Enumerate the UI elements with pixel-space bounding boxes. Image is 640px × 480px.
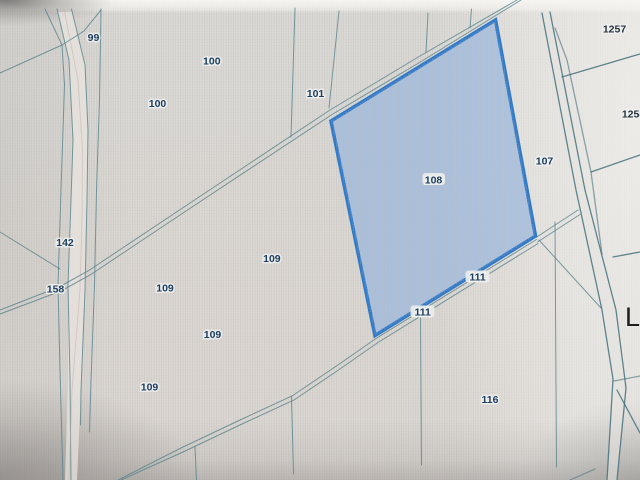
svg-text:1258: 1258 xyxy=(622,109,640,121)
svg-text:116: 116 xyxy=(482,394,499,406)
svg-text:158: 158 xyxy=(47,284,65,296)
svg-text:111: 111 xyxy=(415,306,432,318)
svg-text:100: 100 xyxy=(203,56,221,68)
svg-text:109: 109 xyxy=(156,283,174,295)
svg-text:109: 109 xyxy=(263,253,281,265)
svg-text:107: 107 xyxy=(536,156,554,168)
svg-text:109: 109 xyxy=(141,382,159,394)
svg-text:L: L xyxy=(625,302,640,332)
svg-text:1257: 1257 xyxy=(603,24,627,36)
svg-text:101: 101 xyxy=(307,88,325,100)
svg-text:108: 108 xyxy=(425,175,443,187)
svg-text:100: 100 xyxy=(149,98,167,110)
svg-text:111: 111 xyxy=(469,272,486,284)
svg-text:142: 142 xyxy=(56,237,74,249)
svg-text:109: 109 xyxy=(204,329,222,341)
svg-text:99: 99 xyxy=(88,32,100,44)
